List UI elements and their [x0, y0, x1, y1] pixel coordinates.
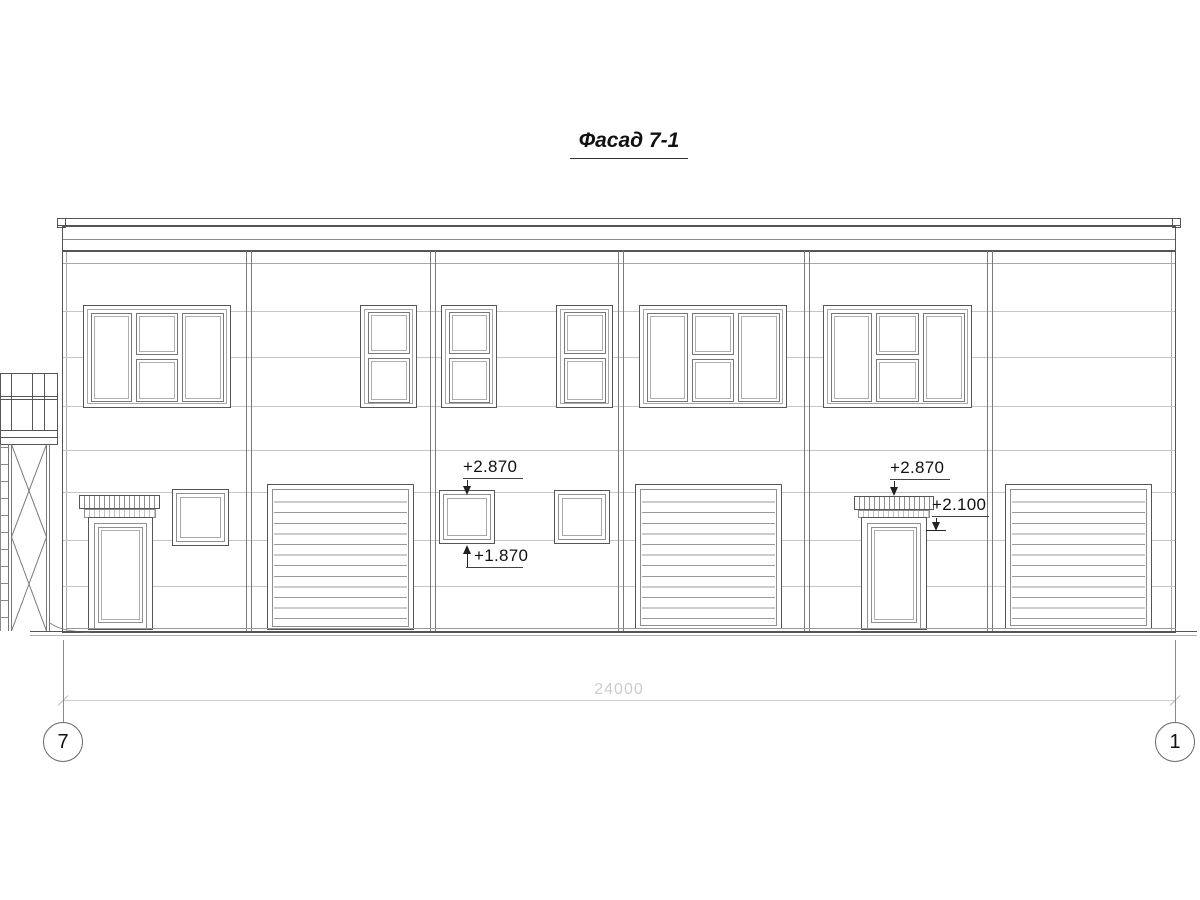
garage-door-slats	[274, 492, 407, 625]
grid-axis-line	[63, 640, 64, 722]
canopy	[854, 496, 934, 510]
fascia-joint-line	[63, 239, 1175, 240]
facade-drawing: Фасад 7-1	[0, 0, 1200, 900]
pilaster	[430, 251, 436, 632]
window-pane	[692, 359, 734, 402]
window-pane	[368, 358, 410, 403]
window-pane	[449, 312, 490, 354]
small-window	[554, 490, 610, 544]
narrow-window	[441, 305, 497, 408]
window-pane	[923, 313, 965, 402]
wall-edge-line-right	[1171, 252, 1172, 632]
narrow-window	[556, 305, 613, 408]
ground-line	[30, 631, 1197, 632]
fascia-band	[62, 226, 1176, 251]
window-pane	[876, 359, 919, 402]
entry-door	[861, 517, 927, 630]
pilaster	[987, 251, 993, 632]
garage-door	[635, 484, 782, 629]
garage-door-slats	[1012, 492, 1145, 624]
garage-door	[267, 484, 414, 630]
window-pane	[447, 498, 487, 536]
window-pane	[136, 359, 178, 402]
dimension-label: 24000	[580, 681, 658, 699]
ground-line-secondary	[30, 635, 1197, 636]
dimension-line	[63, 700, 1175, 701]
window-pane	[180, 497, 221, 538]
window-pane	[692, 313, 734, 355]
threshold-line	[66, 628, 1176, 629]
window-pane	[564, 312, 606, 354]
window-pane	[449, 358, 490, 403]
pilaster	[618, 251, 624, 632]
window-pane	[368, 312, 410, 354]
arrow-down-icon	[463, 486, 471, 495]
garage-door-slats	[642, 492, 775, 624]
pilaster	[246, 251, 252, 632]
drawing-title: Фасад 7-1	[570, 129, 688, 159]
door-leaf	[871, 527, 917, 623]
window-pane	[647, 313, 688, 402]
stair-annex	[0, 370, 100, 642]
level-annotation: +2.870	[890, 458, 950, 480]
garage-door	[1005, 484, 1152, 629]
level-tick	[926, 530, 946, 531]
level-annotation: +2.100	[932, 495, 989, 517]
window-pane	[182, 313, 224, 402]
small-window	[439, 490, 495, 544]
window-pane	[136, 313, 178, 355]
window-pane	[876, 313, 919, 355]
window-pane	[564, 358, 606, 403]
triple-window	[639, 305, 787, 408]
window-pane	[738, 313, 780, 402]
pilaster	[804, 251, 810, 632]
narrow-window	[360, 305, 417, 408]
arrow-down-icon	[890, 487, 898, 496]
triple-window	[823, 305, 972, 408]
small-window	[172, 489, 229, 546]
grid-axis-line	[1175, 640, 1176, 722]
grid-bubble-1: 1	[1155, 722, 1195, 762]
window-pane	[831, 313, 872, 402]
triple-window	[83, 305, 231, 408]
parapet-cap	[57, 218, 1181, 226]
level-annotation: +1.870	[466, 546, 523, 568]
door-leaf	[98, 527, 143, 623]
level-annotation: +2.870	[463, 457, 523, 479]
window-pane	[562, 498, 602, 536]
grid-bubble-7: 7	[43, 722, 83, 762]
